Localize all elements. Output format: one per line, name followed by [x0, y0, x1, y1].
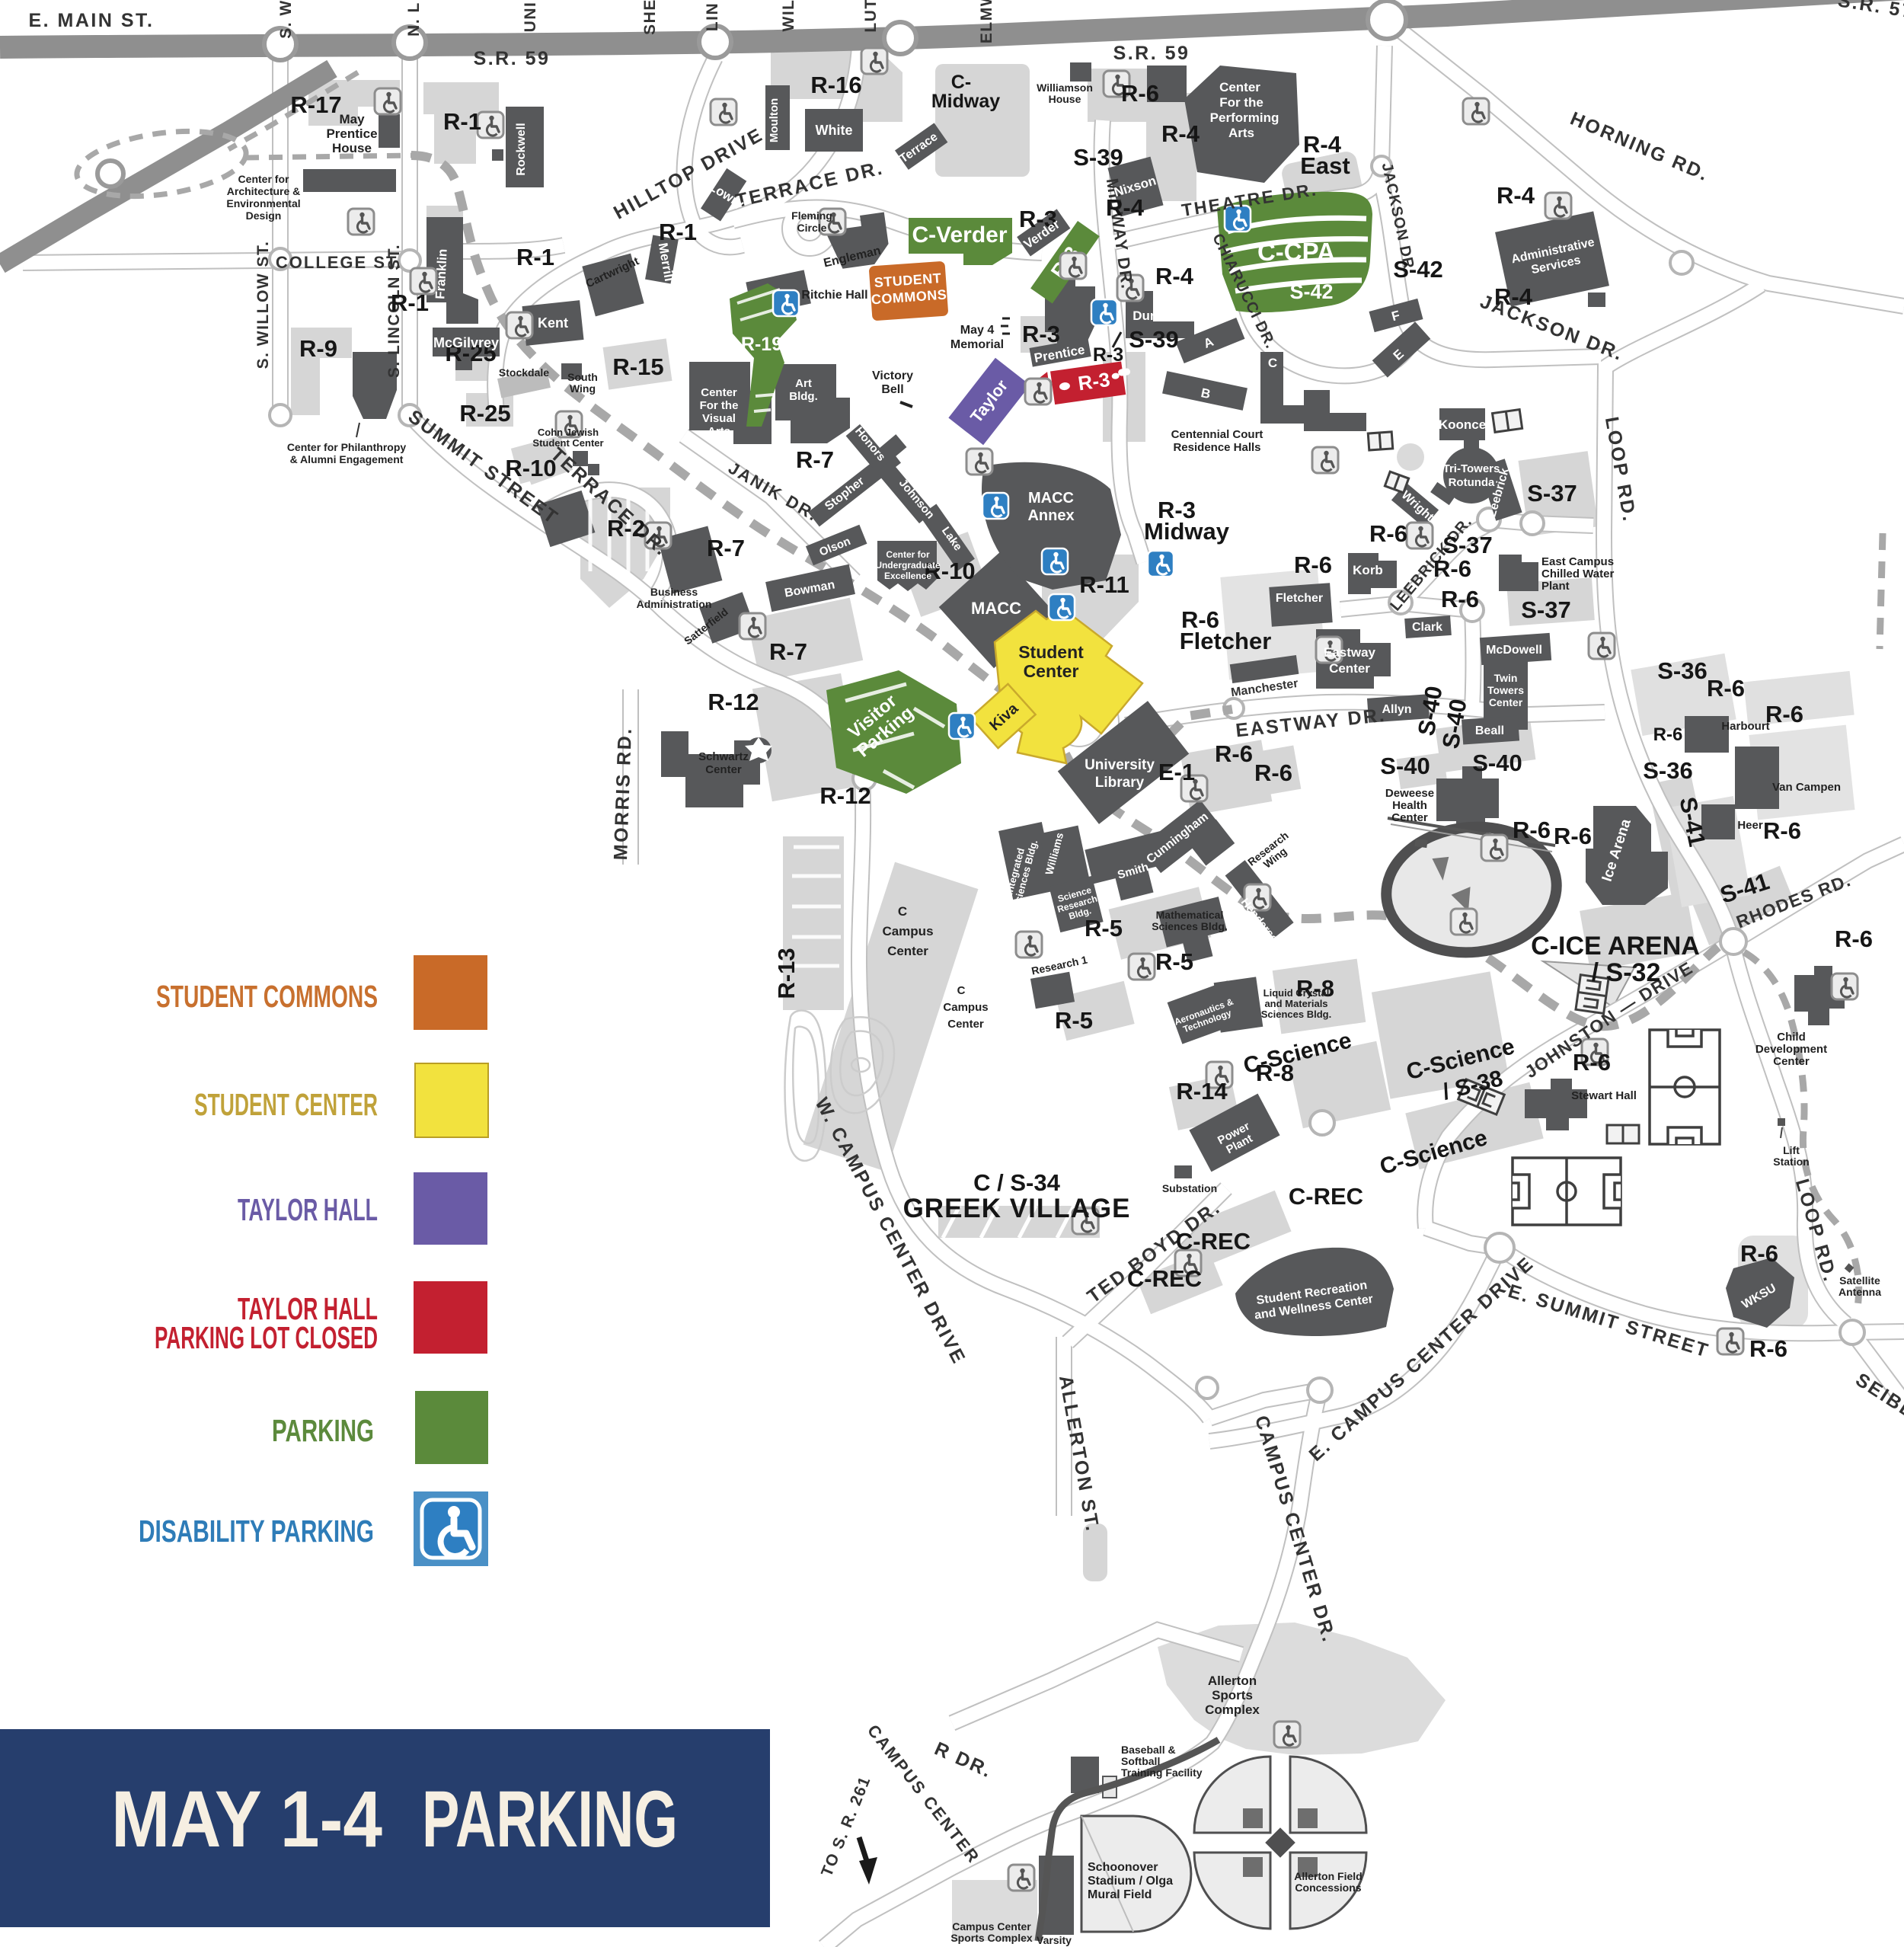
svg-text:R-6: R-6	[1254, 759, 1292, 786]
svg-text:Korb: Korb	[1353, 563, 1383, 577]
svg-text:Fletcher: Fletcher	[1276, 592, 1323, 605]
svg-text:/ S-32: / S-32	[1592, 958, 1661, 987]
svg-text:R-1: R-1	[659, 219, 697, 245]
svg-text:D: D	[1334, 400, 1343, 414]
svg-text:R-16: R-16	[810, 72, 861, 98]
svg-text:R-11: R-11	[1079, 571, 1129, 598]
svg-text:R-3: R-3	[1093, 344, 1123, 366]
svg-text:R-1: R-1	[516, 244, 554, 270]
svg-text:R-6: R-6	[1707, 675, 1745, 702]
svg-text:R-6: R-6	[1441, 586, 1479, 612]
svg-text:Centennial CourtResidence Hall: Centennial CourtResidence Halls	[1171, 428, 1263, 454]
svg-text:S-40: S-40	[1380, 753, 1430, 779]
svg-text:DeweeseHealthCenter: DeweeseHealthCenter	[1385, 787, 1434, 824]
svg-text:McDowell: McDowell	[1486, 644, 1542, 657]
svg-text:R-6: R-6	[1215, 740, 1253, 767]
svg-text:Dunbar: Dunbar	[1132, 309, 1178, 323]
svg-text:C-REC: C-REC	[1289, 1183, 1363, 1210]
svg-text:R-5: R-5	[1155, 948, 1193, 975]
svg-text:MACC: MACC	[971, 599, 1021, 618]
svg-text:FlemingCircle: FlemingCircle	[791, 209, 832, 234]
svg-text:C-REC: C-REC	[1176, 1228, 1251, 1255]
svg-text:S-37: S-37	[1442, 532, 1492, 558]
svg-text:MathematicalSciences Bldg.: MathematicalSciences Bldg.	[1152, 909, 1228, 932]
svg-text:S-42: S-42	[1289, 280, 1333, 303]
svg-text:WIL: WIL	[780, 0, 797, 31]
svg-text:S-37: S-37	[1521, 596, 1570, 623]
svg-text:R-6: R-6	[1749, 1335, 1787, 1362]
svg-text:S-40: S-40	[1472, 750, 1522, 776]
svg-text:McGilvrey: McGilvrey	[433, 335, 499, 350]
svg-text:Koonce: Koonce	[1439, 417, 1486, 432]
svg-text:R-12: R-12	[708, 689, 759, 715]
svg-text:Midway: Midway	[931, 91, 1000, 112]
svg-text:East: East	[1300, 152, 1350, 179]
svg-text:R-6: R-6	[1573, 1049, 1611, 1076]
svg-text:R-1: R-1	[391, 289, 429, 316]
svg-text:R-7: R-7	[769, 638, 807, 665]
svg-text:R-2: R-2	[607, 515, 645, 542]
svg-text:R-7: R-7	[796, 446, 834, 473]
svg-text:R-9: R-9	[299, 335, 337, 362]
svg-text:C-REC: C-REC	[1127, 1265, 1202, 1292]
svg-text:S-36: S-36	[1657, 657, 1707, 684]
svg-text:R-6: R-6	[1433, 555, 1471, 582]
svg-text:R-6: R-6	[1835, 926, 1873, 952]
svg-text:SHE: SHE	[641, 0, 659, 35]
svg-text:R-5: R-5	[1055, 1007, 1093, 1034]
svg-text:AllertonSportsComplex: AllertonSportsComplex	[1205, 1674, 1260, 1717]
svg-text:MACCAnnex: MACCAnnex	[1027, 490, 1074, 524]
svg-text:N. L: N. L	[405, 2, 423, 37]
svg-text:C: C	[1268, 356, 1277, 370]
svg-text:Heer: Heer	[1737, 819, 1763, 832]
svg-text:STUDENT CENTER: STUDENT CENTER	[194, 1087, 378, 1122]
svg-text:PARKING: PARKING	[422, 1775, 678, 1864]
svg-text:C-ICE ARENA: C-ICE ARENA	[1531, 932, 1700, 961]
svg-text:R-17: R-17	[290, 91, 341, 118]
svg-text:R-1: R-1	[443, 108, 481, 135]
svg-text:R-6: R-6	[1369, 520, 1407, 547]
svg-text:Stockdale: Stockdale	[499, 366, 549, 379]
svg-text:S-39: S-39	[1073, 144, 1123, 171]
svg-text:R-4: R-4	[1494, 283, 1533, 310]
svg-text:C-Verder: C-Verder	[912, 222, 1007, 248]
svg-text:PARKING LOT CLOSED: PARKING LOT CLOSED	[155, 1320, 378, 1355]
svg-text:S-37: S-37	[1527, 480, 1577, 507]
svg-text:LIN: LIN	[704, 2, 721, 31]
svg-text:Liquid Crystaland MaterialsSci: Liquid Crystaland MaterialsSciences Bldg…	[1261, 987, 1331, 1020]
svg-text:Kent: Kent	[538, 315, 568, 331]
svg-text:White: White	[816, 123, 853, 138]
svg-text:R-6: R-6	[1740, 1240, 1778, 1267]
svg-text:Midway: Midway	[1144, 518, 1230, 545]
svg-text:R-6: R-6	[1513, 817, 1551, 843]
svg-text:SouthWing: SouthWing	[567, 371, 598, 395]
svg-text:Franklin: Franklin	[433, 248, 449, 299]
svg-text:S. WILLOW ST.: S. WILLOW ST.	[254, 241, 272, 369]
svg-text:R-15: R-15	[612, 353, 663, 380]
svg-text:Allyn: Allyn	[1382, 703, 1411, 716]
svg-text:S-36: S-36	[1643, 757, 1692, 784]
svg-text:COLLEGE ST.: COLLEGE ST.	[276, 253, 402, 272]
svg-text:Moulton: Moulton	[768, 98, 781, 142]
svg-text:R-6: R-6	[1121, 80, 1159, 107]
svg-text:R-19: R-19	[741, 334, 782, 355]
svg-text:Beall: Beall	[1475, 724, 1504, 737]
svg-text:Campus CenterSports Complex: Campus CenterSports Complex	[950, 1920, 1033, 1944]
svg-text:Center for Philanthropy& Alumn: Center for Philanthropy& Alumni Engageme…	[287, 441, 407, 465]
svg-text:R-6: R-6	[1653, 724, 1683, 745]
svg-text:TAYLOR HALL: TAYLOR HALL	[238, 1192, 378, 1227]
svg-text:UNI: UNI	[522, 2, 539, 33]
svg-text:R-3: R-3	[1077, 368, 1112, 395]
svg-text:R-6: R-6	[1763, 817, 1801, 844]
svg-text:E. MAIN ST.: E. MAIN ST.	[28, 10, 154, 31]
svg-text:C-: C-	[951, 72, 971, 93]
svg-text:S-42: S-42	[1393, 256, 1442, 283]
svg-text:MAY 1-4: MAY 1-4	[111, 1775, 382, 1864]
svg-text:PARKING: PARKING	[272, 1413, 374, 1448]
svg-text:R-4: R-4	[1106, 194, 1145, 221]
svg-text:R-6: R-6	[1765, 701, 1803, 727]
svg-text:LUT: LUT	[862, 0, 880, 33]
svg-text:R-3: R-3	[1022, 321, 1060, 347]
svg-text:Center: Center	[1024, 661, 1079, 681]
svg-text:Varsity: Varsity	[1037, 1934, 1072, 1946]
svg-text:R-5: R-5	[1085, 915, 1123, 942]
svg-text:R-12: R-12	[819, 782, 871, 809]
svg-text:R-13: R-13	[773, 948, 800, 999]
svg-text:R-7: R-7	[707, 535, 745, 561]
svg-text:R-4: R-4	[1155, 263, 1194, 289]
svg-text:R-10: R-10	[505, 455, 556, 481]
svg-text:R-6: R-6	[1294, 551, 1332, 578]
svg-text:SatelliteAntenna: SatelliteAntenna	[1839, 1274, 1881, 1298]
svg-text:Clark: Clark	[1412, 621, 1442, 634]
svg-text:C / S-34: C / S-34	[973, 1169, 1060, 1196]
svg-text:Ritchie Hall: Ritchie Hall	[801, 289, 867, 302]
svg-text:Fletcher: Fletcher	[1180, 628, 1272, 654]
svg-text:C-CPA: C-CPA	[1257, 238, 1335, 266]
svg-text:Harbourt: Harbourt	[1721, 720, 1769, 733]
svg-text:S-39: S-39	[1129, 326, 1178, 353]
svg-text:DISABILITY PARKING: DISABILITY PARKING	[139, 1514, 374, 1549]
svg-text:Student: Student	[1018, 642, 1084, 662]
svg-text:Substation: Substation	[1162, 1182, 1217, 1194]
svg-text:S.R. 59: S.R. 59	[474, 48, 551, 69]
svg-text:R-4: R-4	[1497, 182, 1535, 209]
svg-text:Stewart Hall: Stewart Hall	[1571, 1089, 1637, 1102]
svg-text:R-14: R-14	[1176, 1078, 1228, 1105]
svg-text:R-4: R-4	[1161, 120, 1200, 147]
svg-text:Cohn JewishStudent Center: Cohn JewishStudent Center	[532, 427, 603, 449]
svg-text:Allerton FieldConcessions: Allerton FieldConcessions	[1294, 1870, 1362, 1894]
svg-text:R-6: R-6	[1554, 823, 1592, 849]
svg-text:SchwartzCenter: SchwartzCenter	[698, 750, 749, 776]
svg-text:Rockwell: Rockwell	[515, 123, 528, 175]
svg-text:ELMW: ELMW	[978, 0, 995, 43]
svg-text:STUDENT COMMONS: STUDENT COMMONS	[156, 979, 378, 1014]
svg-text:R-25: R-25	[459, 400, 510, 427]
svg-text:S.R. 59: S.R. 59	[1113, 43, 1190, 64]
svg-text:GREEK VILLAGE: GREEK VILLAGE	[903, 1194, 1131, 1223]
svg-text:Van Campen: Van Campen	[1772, 781, 1841, 794]
svg-text:Tri-TowersRotunda: Tri-TowersRotunda	[1443, 462, 1500, 489]
svg-text:S. W: S. W	[277, 0, 295, 39]
svg-text:E-1: E-1	[1158, 759, 1195, 785]
